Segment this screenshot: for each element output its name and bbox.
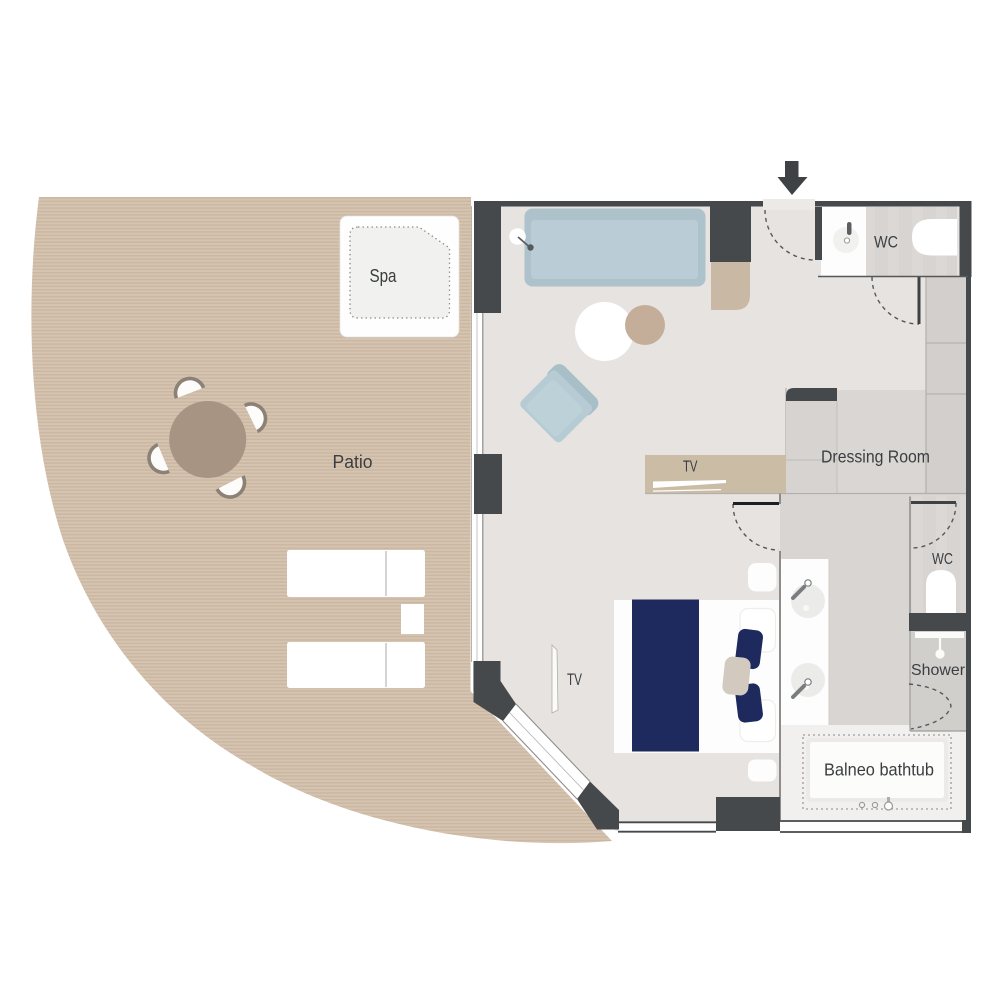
svg-text:TV: TV bbox=[683, 459, 698, 476]
svg-text:Balneo bathtub: Balneo bathtub bbox=[824, 760, 934, 780]
svg-text:Shower: Shower bbox=[911, 662, 966, 679]
svg-text:TV: TV bbox=[567, 671, 582, 689]
svg-text:Dressing Room: Dressing Room bbox=[821, 447, 930, 467]
svg-text:Spa: Spa bbox=[370, 266, 398, 286]
svg-text:WC: WC bbox=[874, 234, 898, 252]
svg-text:WC: WC bbox=[932, 551, 953, 568]
svg-text:Patio: Patio bbox=[333, 452, 373, 472]
